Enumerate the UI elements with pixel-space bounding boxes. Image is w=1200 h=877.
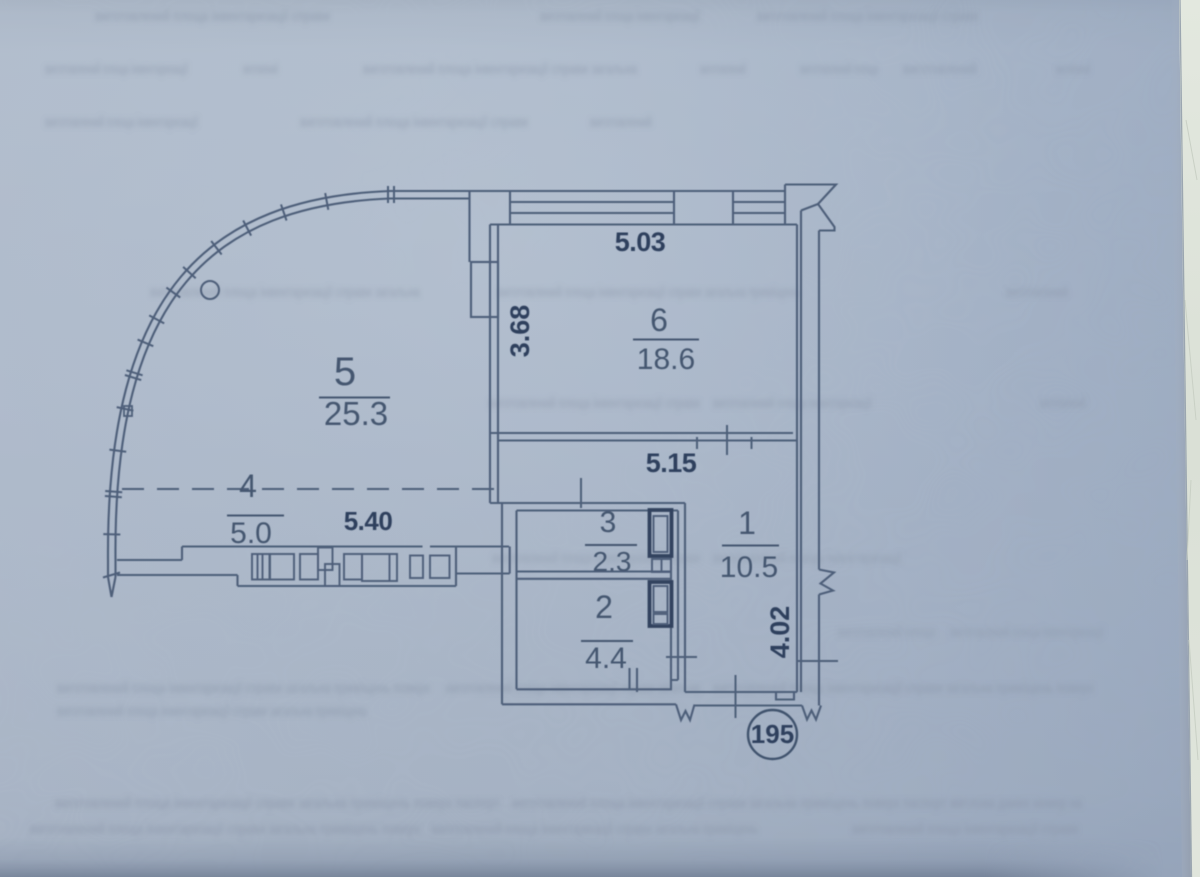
svg-text:виготовлений площа інвентариза: виготовлений площа інвентаризації справи xyxy=(852,821,1078,838)
svg-text:4.02: 4.02 xyxy=(765,606,795,659)
svg-text:3.68: 3.68 xyxy=(505,305,535,358)
svg-text:виготовлений площа інвентариза: виготовлений площа інвентаризації справи… xyxy=(30,821,420,838)
svg-text:виготовлений площа інвентариза: виготовлений площа інвентаризації справи… xyxy=(713,680,1094,697)
svg-text:виготовлений площа інвентариза: виготовлений площа інвентаризації xyxy=(45,114,198,131)
svg-text:2: 2 xyxy=(595,589,613,625)
svg-text:виготовлений площа: виготовлений площа xyxy=(800,61,878,78)
svg-text:3: 3 xyxy=(600,506,617,539)
svg-text:5.15: 5.15 xyxy=(646,448,697,478)
svg-text:5: 5 xyxy=(334,350,356,394)
svg-text:виготовлений: виготовлений xyxy=(1056,61,1090,78)
svg-text:виготовлений: виготовлений xyxy=(1040,395,1086,412)
svg-text:виготовлений площа інвентариза: виготовлений площа інвентаризації справи xyxy=(300,114,528,131)
svg-text:1: 1 xyxy=(738,505,756,541)
svg-text:4.4: 4.4 xyxy=(585,642,627,675)
svg-text:виготовлений: виготовлений xyxy=(590,114,652,131)
svg-text:виготовлений площа інвентариза: виготовлений площа інвентаризації xyxy=(540,8,700,25)
svg-text:5.03: 5.03 xyxy=(615,227,666,257)
svg-text:виготовлений площа інвентариза: виготовлений площа інвентаризації справи… xyxy=(55,795,500,812)
svg-text:виготовлений площа інвентариза: виготовлений площа інвентаризації справи… xyxy=(57,680,430,697)
svg-text:2.3: 2.3 xyxy=(593,546,632,577)
svg-text:виготовлений площа інвентариза: виготовлений площа інвентаризації справи… xyxy=(363,61,637,78)
svg-text:4: 4 xyxy=(239,468,257,504)
svg-text:18.6: 18.6 xyxy=(637,343,695,376)
svg-text:виготовлений площа інвентариза: виготовлений площа інвентаризації справи… xyxy=(512,795,1082,812)
svg-text:виготовлений: виготовлений xyxy=(700,61,746,78)
svg-text:виготовлений: виготовлений xyxy=(1006,284,1068,301)
svg-text:виготовлений площа інвентариза: виготовлений площа інвентаризації справи… xyxy=(57,703,368,720)
svg-text:виготовлений площа інвентариза: виготовлений площа інвентаризації справи xyxy=(488,395,700,412)
svg-text:виготовлений: виготовлений xyxy=(243,61,278,78)
svg-text:виготовлений площа інвентариза: виготовлений площа інвентаризації справи xyxy=(95,8,330,25)
svg-text:195: 195 xyxy=(751,719,794,749)
svg-text:виготовлений площа інвентариза: виготовлений площа інвентаризації xyxy=(45,61,188,78)
svg-text:виготовлений площа інвентариза: виготовлений площа інвентаризації xyxy=(713,395,872,412)
svg-text:5.40: 5.40 xyxy=(344,506,393,536)
svg-text:виготовлений площа інвентариза: виготовлений площа інвентаризації справи… xyxy=(150,284,420,301)
svg-text:6: 6 xyxy=(650,302,668,338)
svg-text:виготовлений: виготовлений xyxy=(903,61,977,78)
svg-text:5.0: 5.0 xyxy=(230,517,272,550)
svg-text:10.5: 10.5 xyxy=(720,551,778,584)
svg-text:виготовлений площа: виготовлений площа xyxy=(838,624,935,641)
svg-text:виготовлений площа інвентариза: виготовлений площа інвентаризації справи… xyxy=(497,284,800,301)
svg-text:25.3: 25.3 xyxy=(324,395,388,432)
svg-text:виготовлений площа інвентариза: виготовлений площа інвентаризації xyxy=(950,624,1104,641)
svg-text:виготовлений площа інвентариза: виготовлений площа інвентаризації справи… xyxy=(432,821,758,838)
svg-text:виготовлений площа інвентариза: виготовлений площа інвентаризації справи xyxy=(757,8,978,25)
